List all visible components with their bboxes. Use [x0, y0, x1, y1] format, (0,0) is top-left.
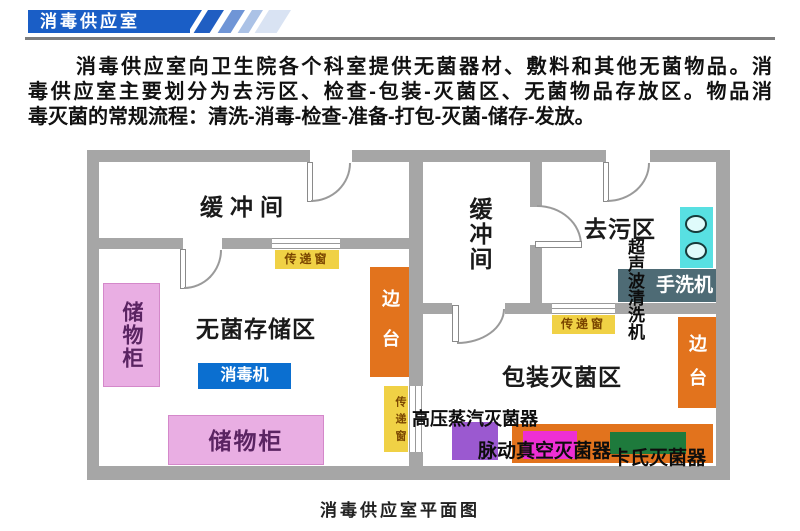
- plan-caption: 消毒供应室平面图: [0, 496, 800, 521]
- cassette-sterilizer-label: 卡氏灭菌器: [611, 443, 706, 470]
- wall-c-segment-2: [530, 245, 542, 303]
- storage-cabinet-left: 储物柜: [103, 283, 160, 387]
- side-table-left: 边台: [370, 267, 409, 377]
- intro-line-1: 消毒供应室向卫生院各个科室提供无菌器材、敷料和其他无菌物品。消: [28, 55, 772, 80]
- pass-window-glass-right: [552, 303, 615, 314]
- page: 消毒供应室 消毒供应室向卫生院各个科室提供无菌器材、敷料和其他无菌物品。消 毒供…: [0, 0, 800, 531]
- pass-window-label-mid: 传递窗: [384, 386, 408, 452]
- pulse-vacuum-sterilizer-label: 脉动真空灭菌器: [478, 436, 611, 463]
- wall-a-segment-3: [340, 238, 410, 249]
- wall-d-segment-2: [505, 303, 552, 314]
- wall-top-middle-segment: [352, 150, 606, 162]
- intro-line-2: 毒供应室主要划分为去污区、检查-包装-灭菌区、无菌物品存放区。物品消: [28, 80, 772, 105]
- door-arc-packing: [457, 309, 505, 344]
- room-label-buffer-right: 缓冲间: [466, 197, 492, 272]
- wall-a-segment-2: [222, 238, 272, 249]
- room-label-packing: 包装灭菌区: [502, 358, 622, 392]
- sink-basin-1: [685, 215, 707, 233]
- ultrasonic-cleaner-label: 超声波清洗机: [620, 238, 648, 340]
- intro-line-3: 毒灭菌的常规流程：清洗-消毒-检查-准备-打包-灭菌-储存-发放。: [28, 105, 772, 130]
- wall-a-segment-1: [99, 238, 183, 249]
- disinfector-box: 消毒机: [198, 363, 291, 389]
- wall-b-segment-1: [409, 162, 423, 386]
- room-label-sterile-storage: 无菌存储区: [196, 310, 316, 344]
- title-banner: 消毒供应室: [28, 10, 190, 33]
- pass-window-glass-top: [272, 238, 340, 249]
- wall-b-segment-2: [409, 452, 423, 466]
- wall-d-segment-1: [423, 303, 452, 314]
- pass-window-label-top: 传递窗: [275, 250, 339, 269]
- pass-window-label-right: 传递窗: [552, 315, 615, 334]
- door-arc-sterile-storage: [184, 250, 222, 289]
- room-label-buffer-left: 缓冲间: [200, 188, 290, 222]
- header-divider: [25, 37, 775, 40]
- door-leaf-buffer-right: [535, 241, 582, 248]
- wall-c-segment-1: [530, 162, 542, 207]
- door-arc-buffer-right: [537, 205, 582, 245]
- wall-top-left-segment: [87, 150, 310, 162]
- wall-right: [716, 150, 730, 480]
- door-arc-buffer-left: [311, 163, 351, 202]
- side-table-right: 边台: [678, 317, 716, 408]
- wall-left: [87, 150, 99, 480]
- steam-sterilizer-label: 高压蒸汽灭菌器: [412, 405, 538, 431]
- door-arc-decontamination: [607, 163, 650, 202]
- intro-paragraph: 消毒供应室向卫生院各个科室提供无菌器材、敷料和其他无菌物品。消 毒供应室主要划分…: [28, 55, 772, 130]
- double-sink: [680, 207, 713, 268]
- storage-cabinet-bottom: 储物柜: [168, 415, 324, 465]
- sink-basin-2: [685, 242, 707, 260]
